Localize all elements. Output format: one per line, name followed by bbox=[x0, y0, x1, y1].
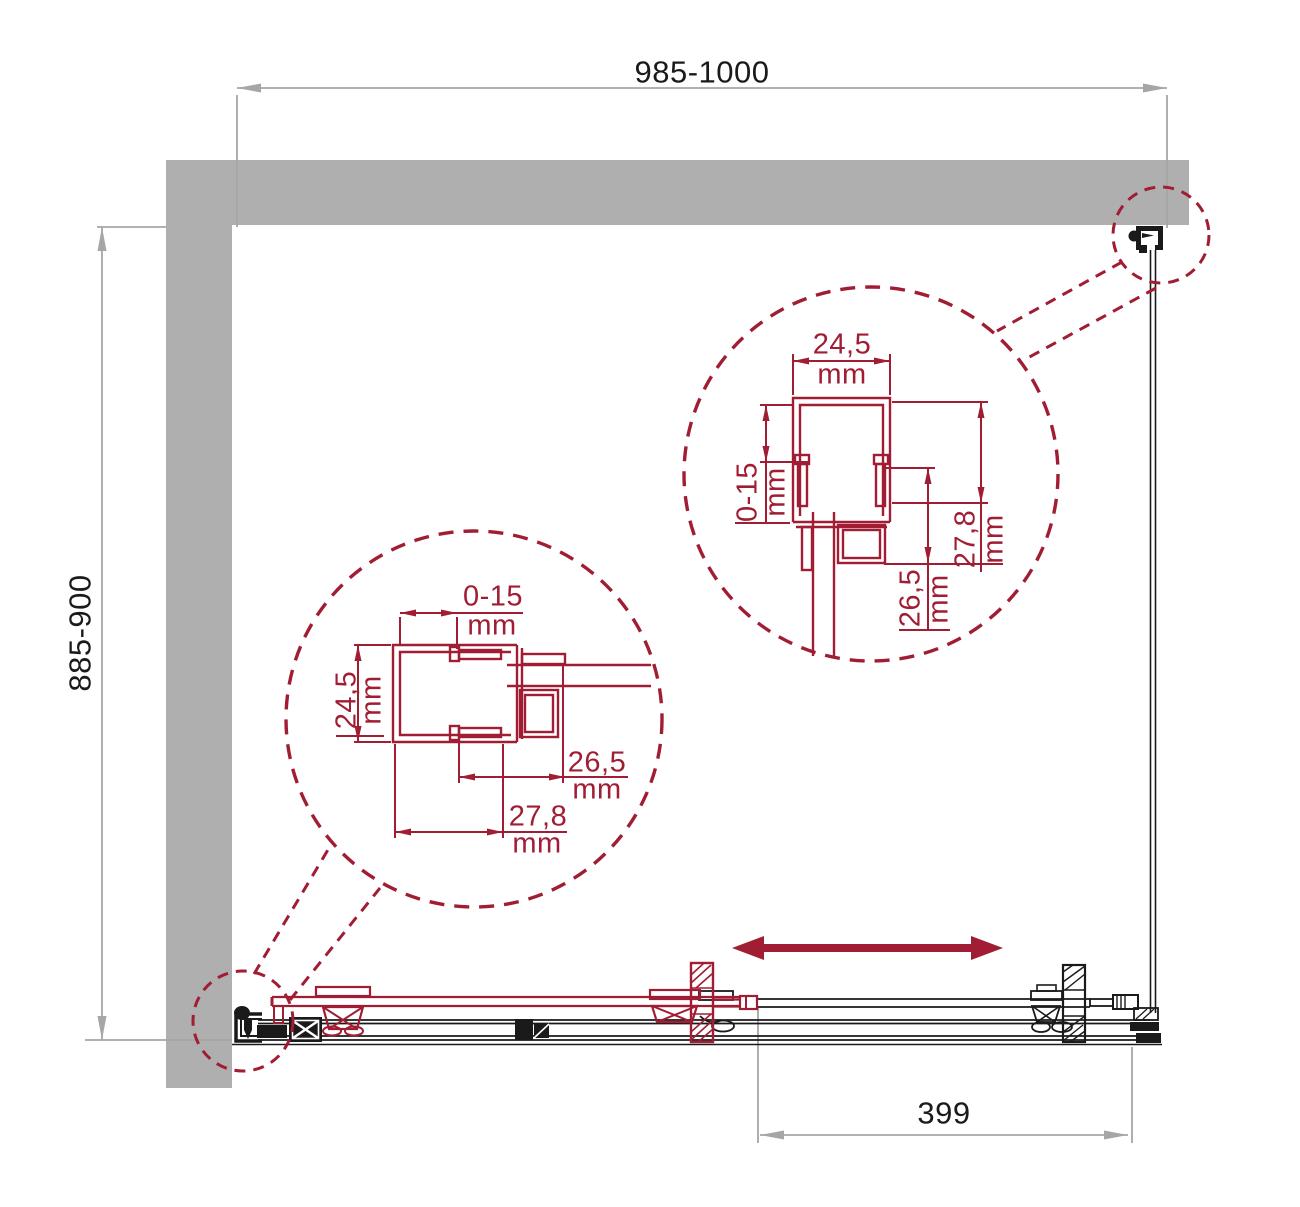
detail-right-depth-unit: mm bbox=[980, 514, 1009, 563]
wall-profile-section-right bbox=[793, 398, 890, 656]
sliding-door-plan bbox=[272, 963, 757, 1042]
dimension-left bbox=[85, 227, 232, 1040]
corner-connector bbox=[1130, 1008, 1161, 1043]
roller-carriage-right bbox=[1031, 965, 1085, 1042]
detail-right-width-value: 24,5 bbox=[813, 331, 871, 360]
source-circle-bottom-left bbox=[193, 971, 293, 1071]
detail-left-inner-unit: mm bbox=[572, 776, 621, 805]
wall-profile-section-left bbox=[393, 645, 651, 742]
detail-right-depth-value: 27,8 bbox=[952, 510, 981, 568]
detail-left-adjust-unit: mm bbox=[467, 612, 516, 641]
detail-left-depth-unit: mm bbox=[512, 830, 561, 859]
dim-top-label: 985-1000 bbox=[634, 57, 769, 88]
detail-right-adjust-unit: mm bbox=[762, 467, 791, 516]
installation-diagram: 985-1000 885-900 399 24,5 mm 0-15 mm 27,… bbox=[0, 0, 1300, 1207]
mid-bracket bbox=[515, 1019, 549, 1040]
dim-bottom-label: 399 bbox=[917, 1098, 970, 1129]
wall-bumper-handle bbox=[1090, 995, 1138, 1009]
detail-right-inner-unit: mm bbox=[925, 574, 954, 623]
detail-right-inner-value: 26,5 bbox=[897, 569, 926, 627]
dimension-top bbox=[237, 84, 1167, 229]
detail-left-width-unit: mm bbox=[358, 675, 387, 724]
detail-left-adjust-value: 0-15 bbox=[463, 583, 523, 612]
side-glass-panel bbox=[1151, 250, 1156, 1013]
top-wall-profile bbox=[1129, 226, 1164, 253]
slide-direction-arrow-icon bbox=[732, 936, 1003, 960]
door-roller-left bbox=[316, 987, 370, 1036]
diagram-linework bbox=[0, 0, 1300, 1207]
dim-left-label: 885-900 bbox=[65, 574, 96, 691]
door-roller-center-knob bbox=[650, 963, 757, 1042]
detail-right-width-unit: mm bbox=[817, 361, 866, 390]
detail-right-adjust-value: 0-15 bbox=[734, 462, 763, 522]
detail-callouts bbox=[193, 187, 1209, 1071]
